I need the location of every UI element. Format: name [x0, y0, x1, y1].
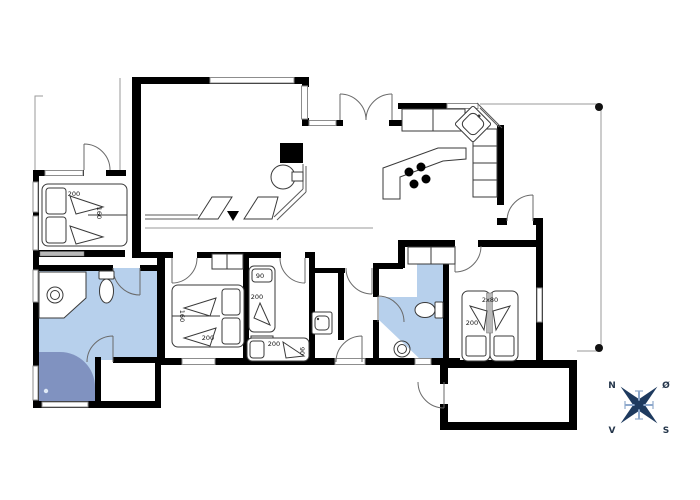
bedroom-mid-door: [172, 258, 197, 283]
bed-mid-width-label: 160: [178, 310, 186, 322]
compass-north-label: N: [608, 381, 616, 391]
utility-sink: [312, 312, 332, 334]
wood-stove: [271, 165, 303, 189]
kitchen-island-cooktop: [383, 148, 466, 199]
floor-plan-drawing: 200 160 160 200 90 200 200 90 2x80 200 N…: [0, 0, 700, 500]
floor-drain-east: [394, 341, 410, 357]
bedroom-nw-terrace-door: [84, 144, 110, 170]
wardrobe-bedroom-mid: [212, 254, 243, 269]
kids-vertical-width-label: 90: [256, 272, 264, 280]
compass-west-label: V: [609, 426, 616, 436]
wardrobe-rear-hall: [408, 247, 455, 264]
compass-rose: N Ø S V: [608, 380, 670, 436]
compass-south-label: S: [663, 426, 669, 436]
bed-nw-length-label: 200: [68, 190, 80, 198]
shower-drain-dot: [44, 389, 48, 393]
bed-se-size-label: 2x80: [482, 296, 498, 304]
bed-nw-width-label: 160: [95, 207, 103, 219]
compass-east-label: Ø: [662, 380, 670, 391]
bed-mid-length-label: 200: [202, 334, 214, 342]
entry-double-door: [340, 94, 392, 120]
bed-se-length-label: 200: [466, 319, 478, 327]
bedroom-se-door: [455, 246, 481, 272]
kids-horizontal-length-label: 200: [268, 340, 280, 348]
kids-horizontal-width-label: 90: [298, 347, 306, 355]
rear-hall-door: [346, 268, 372, 294]
toilet-east: [415, 302, 443, 318]
fireplace: [280, 143, 303, 163]
kids-vertical-length-label: 200: [251, 293, 263, 301]
kids-room-door: [280, 258, 305, 283]
floor-plan: 200 160 160 200 90 200 200 90 2x80 200 N…: [0, 0, 700, 500]
kitchen-terrace-door: [507, 195, 533, 221]
toilet-west: [99, 271, 114, 303]
entrance-arrow: [227, 211, 239, 221]
bed-nw-double: [42, 184, 127, 246]
